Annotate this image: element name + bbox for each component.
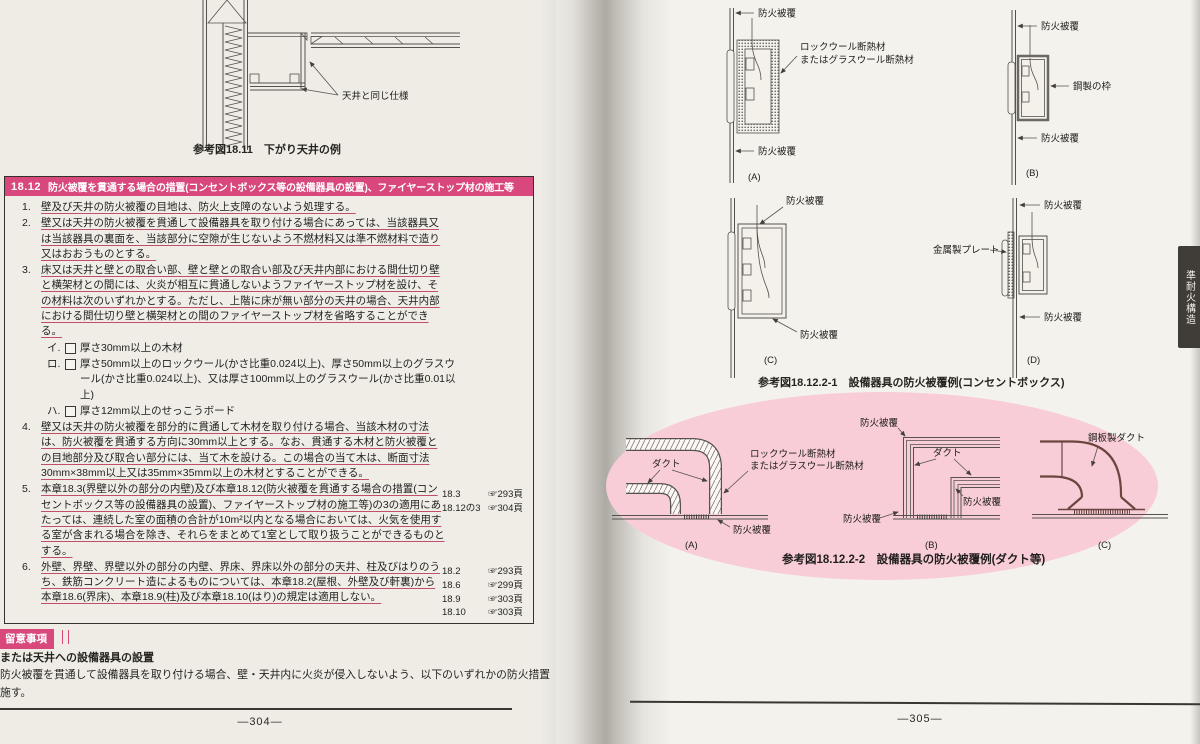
book-spread: 天井と同じ仕様 参考図18.11 下がり天井の例 18.12 防火被覆を貫通する… <box>0 0 1200 744</box>
list-item: 5.本章18.3(界壁以外の部分の内壁)及び本章18.12(防火被覆を貫通する場… <box>5 482 445 558</box>
notes-body-line1: 防火被覆を貫通して設備器具を取り付ける場合、壁・天井内に火炎が侵入しないよう、以… <box>0 666 550 682</box>
outlet-box-b: 防火被覆 鋼製の枠 防火被覆 (B) <box>1008 10 1112 185</box>
list-item: 4.壁又は天井の防火被覆を部分的に貫通して木材を取り付ける場合、当該木材の寸法は… <box>5 420 445 481</box>
footer-rule-left <box>0 708 512 710</box>
sub-item: イ.厚さ30mm以上の木材 <box>5 341 463 356</box>
section-number: 18.12 <box>11 181 41 193</box>
sub-item: ロ.厚さ50mm以上のロックウール(かさ比重0.024以上)、厚さ50mm以上の… <box>5 357 463 403</box>
label-steel-frame: 鋼製の枠 <box>1073 81 1112 93</box>
label-fire-cover: 防火被覆 <box>860 417 899 429</box>
list-item: 2.壁又は天井の防火被覆を貫通して設備器具を取り付ける場合にあっては、当該器具又… <box>5 216 445 262</box>
insulated-wall-section <box>203 0 248 150</box>
label-fire-cover: 防火被覆 <box>1041 133 1080 145</box>
label-fire-cover: 防火被覆 <box>843 513 882 525</box>
section-items: 1.壁及び天井の防火被覆の目地は、防火上支障のないよう処理する。 2.壁又は天井… <box>5 196 533 606</box>
badge-double-bar-icon <box>62 630 69 644</box>
list-item: 3.床又は天井と壁との取合い部、壁と壁との取合い部及び天井内部における間仕切り壁… <box>5 263 445 339</box>
figure-18-11-caption: 参考図18.11 下がり天井の例 <box>193 141 341 157</box>
label-steel-duct: 鋼板製ダクト <box>1088 432 1145 444</box>
diagram-tag-c: (C) <box>764 355 777 366</box>
label-fire-cover: 防火被覆 <box>963 496 1002 508</box>
figure-18-12-2-1-caption: 参考図18.12.2-1 設備器具の防火被覆例(コンセントボックス) <box>758 374 1064 390</box>
checkbox-icon <box>65 359 76 370</box>
notes-heading: または天井への設備器具の設置 <box>0 649 154 665</box>
side-tab-semi-fireproof: 準耐火構造 <box>1178 246 1200 348</box>
page-number-304: —304— <box>205 716 315 728</box>
label-rockwool: ロックウール断熱材 <box>800 41 886 53</box>
dropped-ceiling <box>248 33 307 90</box>
diagram-tag-d: (D) <box>1027 355 1040 366</box>
label-rockwool: ロックウール断熱材 <box>750 448 836 460</box>
annotation-ceiling-spec: 天井と同じ仕様 <box>342 90 409 102</box>
sub-item: ハ.厚さ12mm以上のせっこうボード <box>5 404 463 419</box>
label-glasswool: またはグラスウール断熱材 <box>800 54 914 66</box>
page-number-305: —305— <box>865 713 975 725</box>
label-fire-cover: 防火被覆 <box>1044 312 1083 324</box>
label-duct: ダクト <box>652 458 681 470</box>
notes-badge: 留意事項 <box>0 629 54 649</box>
label-fire-cover: 防火被覆 <box>758 8 797 20</box>
label-fire-cover: 防火被覆 <box>1044 200 1083 212</box>
label-fire-cover: 防火被覆 <box>800 329 839 341</box>
checkbox-icon <box>65 343 76 354</box>
section-18-12-box: 18.12 防火被覆を貫通する場合の措置(コンセントボックス等の設備器具の設置)… <box>4 176 534 624</box>
main-ceiling <box>311 33 460 48</box>
label-metal-plate: 金属製プレート <box>933 244 1000 256</box>
page-references: 18.3☞293頁 18.12の3☞304頁 <box>442 488 523 516</box>
label-fire-cover: 防火被覆 <box>786 195 825 207</box>
diagram-tag-c: (C) <box>1098 540 1111 551</box>
outlet-box-c: 防火被覆 防火被覆 (C) <box>728 195 839 378</box>
list-item: 1.壁及び天井の防火被覆の目地は、防火上支障のないよう処理する。 <box>5 200 445 215</box>
diagram-tag-b: (B) <box>925 540 938 551</box>
figure-18-11-annotation: 天井と同じ仕様 <box>302 62 409 102</box>
notes-body-line2: 施す。 <box>0 684 31 700</box>
label-duct: ダクト <box>933 447 962 459</box>
label-fire-cover: 防火被覆 <box>758 146 797 158</box>
page-references: 18.2☞293頁 18.6☞299頁 18.9☞303頁 18.10☞303頁 <box>442 565 523 620</box>
outlet-box-d: 金属製プレート 防火被覆 防火被覆 (D) <box>933 198 1083 378</box>
diagram-tag-b: (B) <box>1026 168 1039 179</box>
figure-18-12-2-1-drawing: 防火被覆 ロックウール断熱材 またはグラスウール断熱材 防火被覆 (A) 防火被… <box>630 0 1200 390</box>
figure-18-12-2-2-drawing: ダクト ロックウール断熱材 またはグラスウール断熱材 防火被覆 (A) 防火被覆 <box>600 390 1170 585</box>
list-item: 6.外壁、界壁、界壁以外の部分の内壁、界床、界床以外の部分の天井、柱及びはりのう… <box>5 560 445 606</box>
figure-18-11-drawing: 天井と同じ仕様 <box>130 0 560 150</box>
label-fire-cover: 防火被覆 <box>1041 21 1080 33</box>
label-fire-cover: 防火被覆 <box>733 524 772 536</box>
checkbox-icon <box>65 406 76 417</box>
diagram-tag-a: (A) <box>685 540 698 551</box>
outlet-box-a: 防火被覆 ロックウール断熱材 またはグラスウール断熱材 防火被覆 (A) <box>727 8 914 184</box>
section-title: 防火被覆を貫通する場合の措置(コンセントボックス等の設備器具の設置)、ファイヤー… <box>48 179 514 194</box>
label-glasswool: またはグラスウール断熱材 <box>750 460 864 472</box>
section-18-12-header: 18.12 防火被覆を貫通する場合の措置(コンセントボックス等の設備器具の設置)… <box>5 177 533 196</box>
diagram-tag-a: (A) <box>748 172 761 183</box>
figure-18-12-2-2-caption: 参考図18.12.2-2 設備器具の防火被覆例(ダクト等) <box>781 552 1045 566</box>
